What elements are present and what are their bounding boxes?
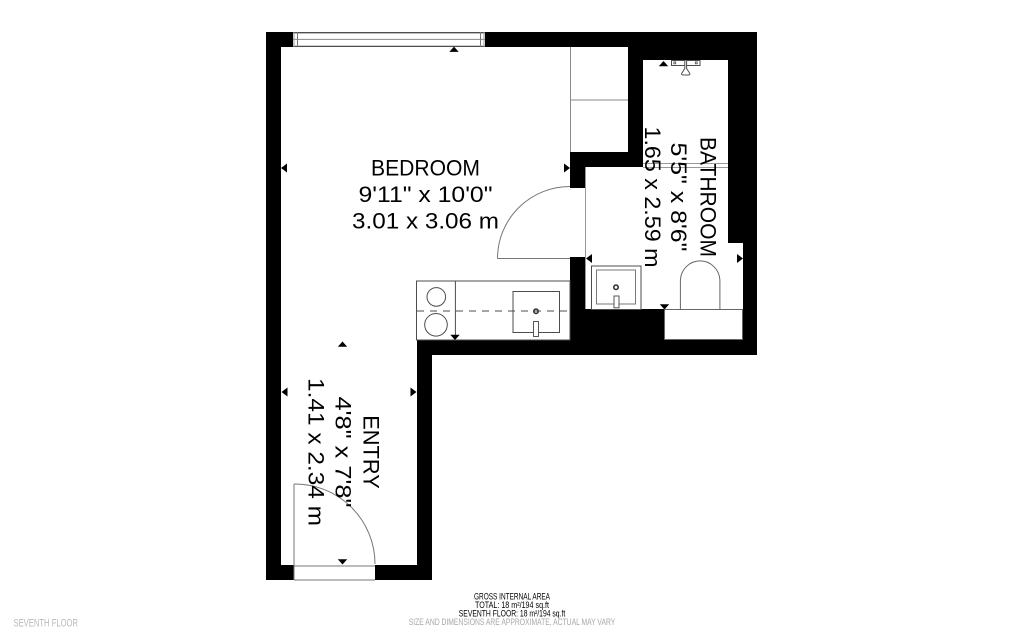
svg-text:BEDROOM: BEDROOM — [371, 156, 480, 181]
svg-text:4'8" x 7'8": 4'8" x 7'8" — [331, 397, 356, 508]
svg-text:1.65 x 2.59 m: 1.65 x 2.59 m — [640, 127, 665, 268]
svg-text:9'11" x 10'0": 9'11" x 10'0" — [359, 182, 493, 207]
svg-text:SEVENTH FLOOR: SEVENTH FLOOR — [14, 618, 79, 630]
svg-text:1.41 x 2.34 m: 1.41 x 2.34 m — [304, 378, 329, 526]
svg-text:BATHROOM: BATHROOM — [696, 137, 721, 257]
svg-text:3.01 x 3.06 m: 3.01 x 3.06 m — [352, 209, 499, 234]
svg-text:5'5" x 8'6": 5'5" x 8'6" — [666, 143, 691, 252]
svg-text:SIZE AND DIMENSIONS ARE APPROX: SIZE AND DIMENSIONS ARE APPROXIMATE, ACT… — [409, 617, 616, 627]
svg-text:ENTRY: ENTRY — [359, 415, 384, 489]
